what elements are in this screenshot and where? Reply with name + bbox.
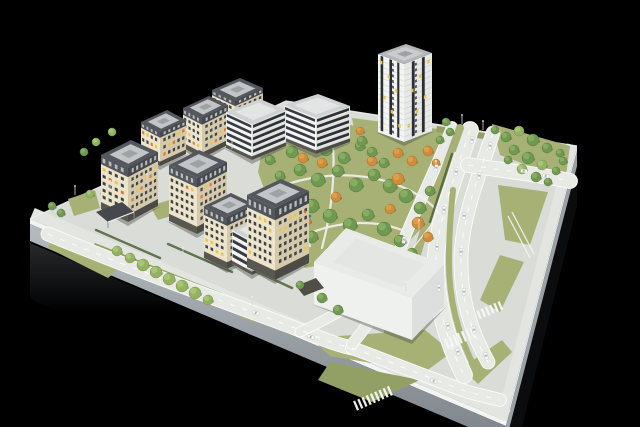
vehicle xyxy=(520,169,527,173)
street-lamp xyxy=(482,120,484,130)
vehicle xyxy=(402,236,406,243)
vehicle xyxy=(462,212,466,219)
scene-canvas xyxy=(0,0,640,427)
tree xyxy=(108,128,117,136)
vehicle xyxy=(542,174,549,178)
tree xyxy=(92,138,101,146)
building-tower xyxy=(375,44,435,146)
vehicle xyxy=(437,284,441,291)
vehicle xyxy=(462,288,466,295)
street-lamp xyxy=(461,114,463,124)
architectural-model-photo xyxy=(0,0,640,427)
building-block-foreground-right xyxy=(244,179,312,284)
tree xyxy=(80,148,89,156)
vehicle xyxy=(442,206,446,213)
vehicle xyxy=(435,244,439,251)
vehicle xyxy=(459,249,463,256)
street-lamp xyxy=(74,185,76,195)
